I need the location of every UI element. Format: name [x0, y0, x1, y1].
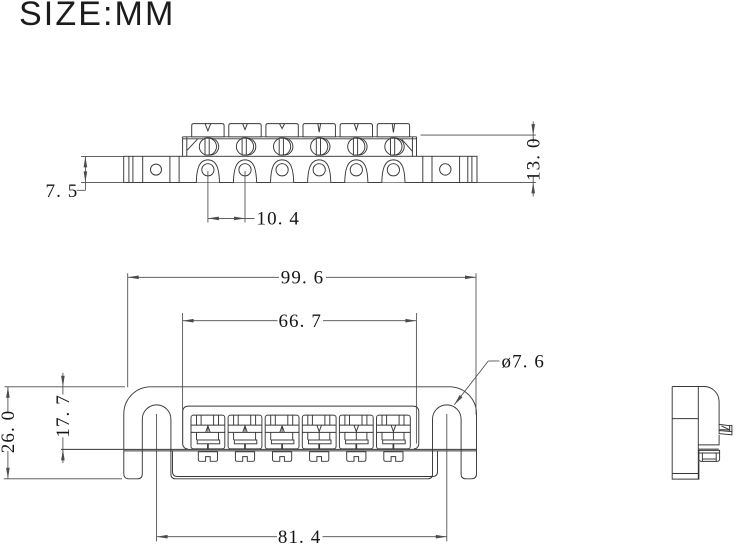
svg-text:66. 7: 66. 7	[278, 311, 322, 332]
svg-text:13. 0: 13. 0	[523, 137, 544, 181]
svg-text:ø7. 6: ø7. 6	[502, 351, 546, 372]
svg-text:10. 4: 10. 4	[257, 209, 301, 230]
svg-text:26. 0: 26. 0	[0, 410, 19, 454]
svg-text:99. 6: 99. 6	[281, 267, 325, 288]
svg-text:7. 5: 7. 5	[46, 181, 79, 202]
svg-text:81. 4: 81. 4	[278, 527, 322, 547]
svg-text:17. 7: 17. 7	[53, 394, 74, 438]
